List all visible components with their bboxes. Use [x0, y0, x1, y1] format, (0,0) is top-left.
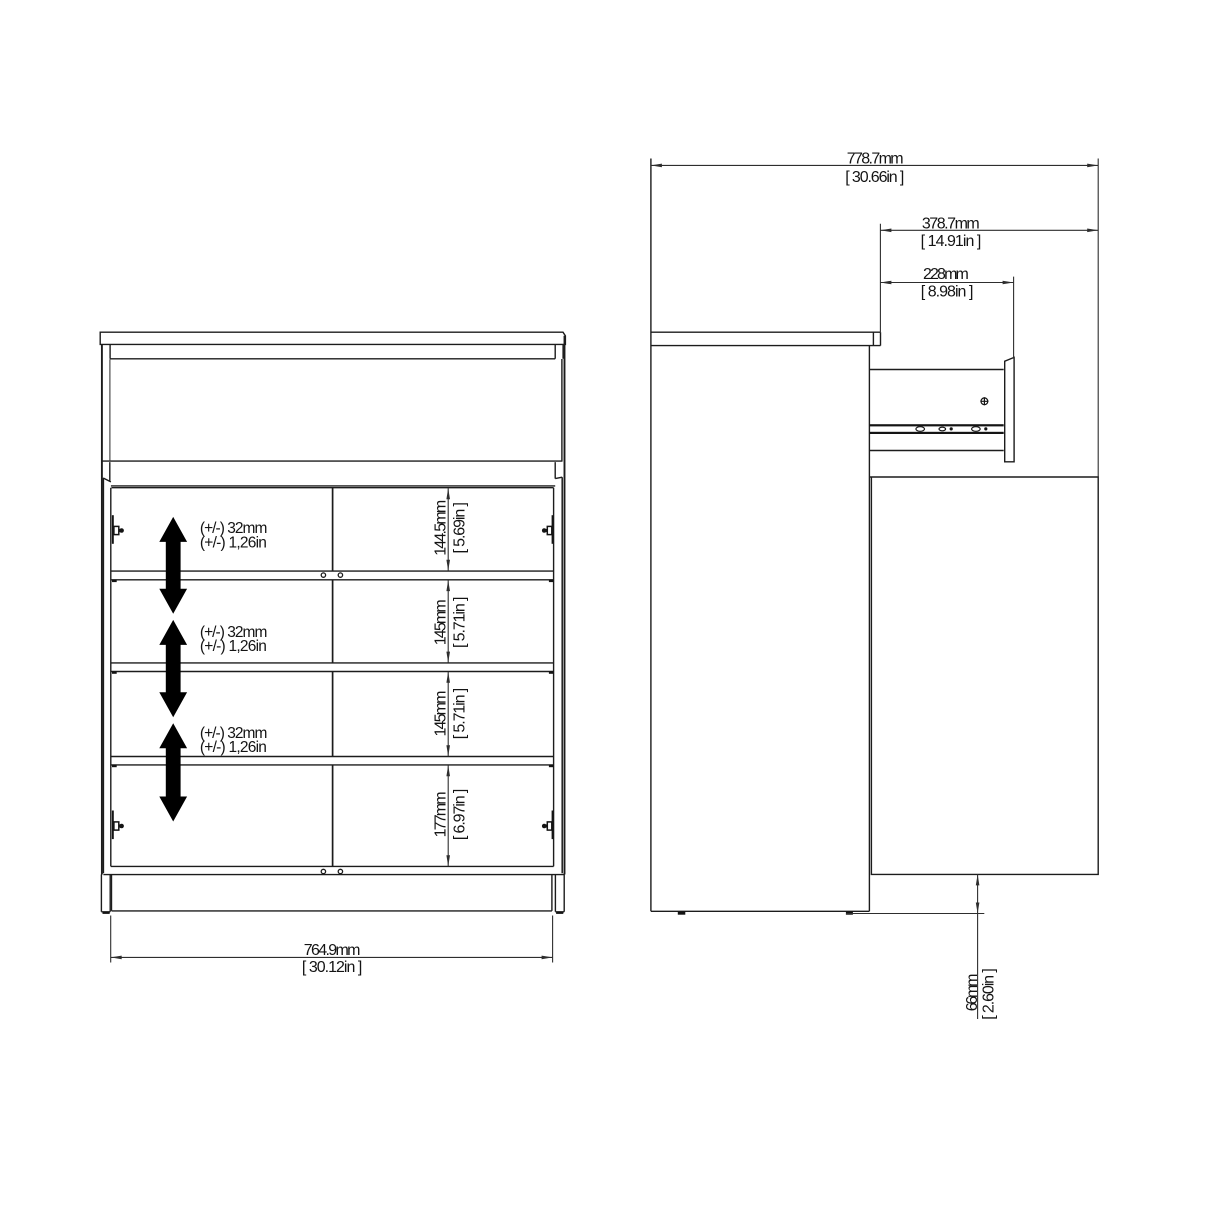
- svg-text:[ 5.71in ]: [ 5.71in ]: [451, 688, 468, 740]
- svg-text:228mm: 228mm: [923, 266, 969, 283]
- svg-text:378.7mm: 378.7mm: [922, 215, 980, 232]
- svg-text:[ 5.69in ]: [ 5.69in ]: [451, 502, 468, 554]
- svg-text:144.5mm: 144.5mm: [432, 500, 449, 556]
- svg-text:(+/-) 1,26in: (+/-) 1,26in: [200, 534, 267, 551]
- svg-text:(+/-) 1,26in: (+/-) 1,26in: [200, 638, 267, 655]
- svg-text:[ 30.66in ]: [ 30.66in ]: [845, 169, 904, 186]
- svg-text:177mm: 177mm: [432, 791, 449, 837]
- svg-text:145mm: 145mm: [432, 691, 449, 737]
- svg-text:764.9mm: 764.9mm: [304, 942, 361, 959]
- svg-text:[ 14.91in ]: [ 14.91in ]: [921, 233, 982, 250]
- svg-text:[ 30.12in ]: [ 30.12in ]: [302, 959, 362, 976]
- svg-text:145mm: 145mm: [432, 599, 449, 645]
- svg-text:[ 8.98in ]: [ 8.98in ]: [921, 284, 974, 301]
- svg-text:66mm: 66mm: [964, 974, 981, 1012]
- svg-text:[ 6.97in ]: [ 6.97in ]: [451, 789, 468, 841]
- svg-text:[ 2.60in ]: [ 2.60in ]: [981, 968, 998, 1020]
- svg-text:778.7mm: 778.7mm: [847, 150, 904, 167]
- svg-text:[ 5.71in ]: [ 5.71in ]: [451, 597, 468, 649]
- svg-text:(+/-) 1,26in: (+/-) 1,26in: [200, 739, 267, 756]
